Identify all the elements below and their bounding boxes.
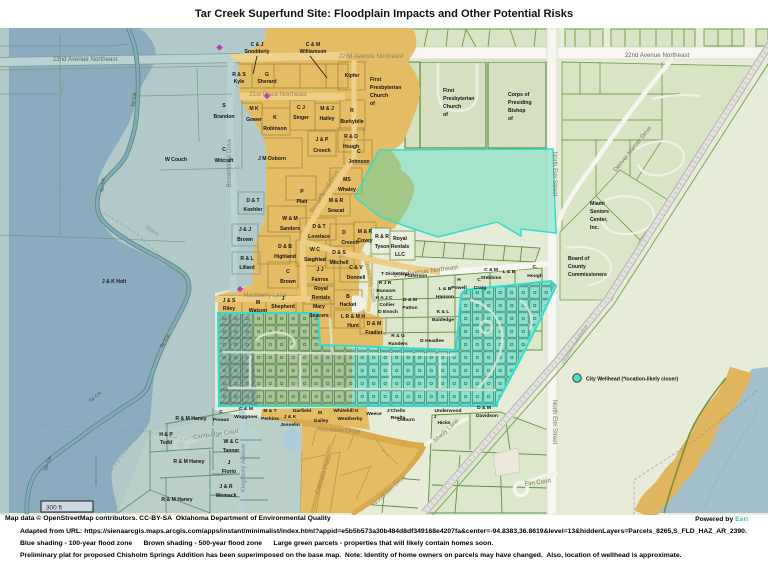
svg-text:Highland: Highland [274, 254, 296, 260]
svg-text:Burkybile: Burkybile [340, 119, 363, 125]
svg-text:Brandon: Brandon [214, 114, 235, 120]
svg-text:Bishop: Bishop [508, 108, 526, 114]
svg-text:J & R: J & R [219, 484, 232, 490]
svg-text:R J R: R J R [379, 280, 392, 286]
svg-text:Gailey: Gailey [314, 418, 329, 424]
svg-text:Kipfer: Kipfer [345, 73, 360, 79]
svg-text:R & R: R & R [375, 234, 389, 240]
svg-text:L & B: L & B [503, 269, 516, 275]
svg-text:C: C [219, 409, 223, 415]
svg-text:Presbyterian: Presbyterian [443, 96, 474, 102]
svg-text:C & V: C & V [349, 265, 363, 271]
svg-text:C & M: C & M [239, 406, 253, 412]
svg-text:Board of: Board of [568, 256, 590, 262]
svg-text:Robinson: Robinson [263, 126, 286, 132]
svg-text:of: of [443, 112, 448, 118]
svg-text:H: H [457, 277, 461, 283]
svg-text:Sanders: Sanders [280, 226, 300, 232]
svg-text:21st Place Northeast: 21st Place Northeast [249, 91, 307, 98]
svg-text:Ransom: Ransom [376, 288, 396, 294]
svg-text:300 ft: 300 ft [46, 505, 62, 512]
svg-text:Williamson: Williamson [300, 49, 327, 55]
svg-text:Brown: Brown [237, 237, 253, 243]
svg-text:H & P: H & P [159, 432, 173, 438]
svg-text:R & G: R & G [391, 333, 405, 339]
svg-text:LLC: LLC [395, 252, 405, 258]
svg-text:D: D [342, 230, 346, 236]
svg-text:D & M: D & M [477, 405, 491, 411]
svg-text:R & L: R & L [240, 256, 253, 262]
svg-text:Royal: Royal [393, 236, 407, 242]
svg-text:J & K: J & K [284, 414, 297, 420]
svg-text:J & J: J & J [239, 227, 251, 233]
svg-text:Davidson: Davidson [476, 413, 498, 419]
svg-text:Covey: Covey [357, 238, 372, 244]
svg-text:R & D: R & D [344, 134, 358, 140]
svg-text:of: of [508, 116, 513, 122]
svg-text:Waggoner: Waggoner [234, 414, 258, 420]
svg-text:D & M: D & M [367, 321, 381, 327]
svg-text:D & T: D & T [312, 224, 326, 230]
svg-text:Hough: Hough [527, 273, 542, 279]
svg-text:J J: J J [316, 267, 323, 273]
svg-text:Randers: Randers [388, 341, 408, 347]
svg-text:D & T: D & T [246, 198, 260, 204]
svg-text:C & M: C & M [306, 42, 320, 48]
svg-text:Presiding: Presiding [508, 100, 532, 106]
svg-text:Rentals: Rentals [391, 244, 410, 250]
svg-text:Inc.: Inc. [590, 225, 599, 231]
svg-text:C J: C J [297, 105, 305, 111]
svg-text:D & B: D & B [278, 244, 292, 250]
svg-text:Baldedge: Baldedge [432, 317, 454, 323]
svg-text:Brown: Brown [280, 279, 296, 285]
svg-text:Royal: Royal [314, 286, 328, 292]
svg-text:Lovelace: Lovelace [308, 234, 330, 240]
svg-text:Tanner: Tanner [223, 448, 240, 454]
svg-text:R: R [350, 108, 354, 114]
svg-text:Lillard: Lillard [239, 265, 254, 271]
svg-text:W & M: W & M [282, 216, 298, 222]
svg-text:Watson: Watson [249, 308, 267, 314]
svg-text:C: C [286, 269, 290, 275]
svg-text:Donnell: Donnell [347, 275, 366, 281]
svg-text:M: M [256, 300, 260, 306]
svg-text:M K: M K [249, 106, 259, 112]
svg-text:D & S: D & S [332, 250, 346, 256]
svg-text:Kyle: Kyle [234, 79, 245, 85]
svg-text:Hacket: Hacket [340, 302, 357, 308]
svg-text:Weece: Weece [366, 411, 382, 417]
svg-text:Collier: Collier [379, 302, 394, 308]
svg-text:R & S: R & S [232, 72, 246, 78]
svg-text:Creech: Creech [341, 240, 358, 246]
svg-text:W & C: W & C [224, 439, 239, 445]
svg-text:22nd Avenue Northeast: 22nd Avenue Northeast [53, 56, 118, 63]
svg-text:Seacat: Seacat [328, 208, 345, 214]
svg-text:Weatherby: Weatherby [338, 416, 363, 422]
svg-text:Snodderly: Snodderly [245, 49, 270, 55]
svg-text:Miami: Miami [590, 201, 605, 207]
svg-text:R & M Haney: R & M Haney [175, 416, 206, 422]
svg-text:Seacers: Seacers [309, 313, 329, 319]
svg-text:Tyson: Tyson [375, 244, 390, 250]
svg-text:J: J [228, 460, 231, 466]
svg-text:R & M Haney: R & M Haney [161, 497, 192, 503]
svg-text:Kingsbury Avenue: Kingsbury Avenue [241, 443, 247, 492]
svg-text:B: B [346, 294, 350, 300]
svg-text:22nd Avenue Northeast: 22nd Avenue Northeast [625, 52, 690, 59]
svg-text:J: J [434, 414, 437, 420]
svg-text:Gower: Gower [246, 117, 262, 123]
svg-text:Womack: Womack [216, 493, 237, 499]
svg-text:Osburn: Osburn [397, 417, 414, 423]
svg-text:R & M Haney: R & M Haney [173, 459, 204, 465]
svg-text:H A J C: H A J C [375, 295, 392, 301]
svg-text:Preaus: Preaus [213, 417, 230, 423]
svg-text:J M Osborn: J M Osborn [258, 156, 286, 162]
svg-text:Florio: Florio [222, 469, 236, 475]
svg-text:Mary: Mary [313, 304, 325, 310]
svg-text:D & M: D & M [403, 297, 417, 303]
svg-text:Hailey: Hailey [319, 116, 334, 122]
svg-text:C: C [222, 147, 226, 153]
svg-text:Patterson: Patterson [405, 273, 428, 279]
svg-text:First: First [370, 77, 382, 83]
svg-text:Creech: Creech [313, 148, 330, 154]
svg-text:J'Chells: J'Chells [387, 408, 406, 414]
svg-text:Whaley: Whaley [338, 187, 356, 193]
svg-text:W Couch: W Couch [165, 157, 187, 163]
svg-text:Presbyterian: Presbyterian [370, 85, 401, 91]
svg-text:M & J: M & J [320, 106, 334, 112]
svg-text:C & J: C & J [250, 42, 263, 48]
svg-text:Garfield: Garfield [293, 408, 311, 414]
svg-text:Church: Church [443, 104, 461, 110]
svg-text:Stebbins: Stebbins [481, 275, 502, 281]
svg-text:K: K [273, 115, 277, 121]
svg-text:C: C [357, 149, 361, 155]
svg-text:Hunt: Hunt [347, 323, 359, 329]
svg-text:Perkins: Perkins [261, 416, 279, 422]
svg-text:Fradier: Fradier [365, 330, 382, 336]
svg-text:J & K Holt: J & K Holt [102, 279, 127, 285]
svg-text:Josselin: Josselin [280, 422, 300, 428]
svg-text:Hanson: Hanson [436, 294, 454, 300]
svg-text:M & R: M & R [358, 229, 373, 235]
svg-text:Corps of: Corps of [508, 92, 530, 98]
svg-text:Singer: Singer [293, 115, 309, 121]
svg-text:Koehler: Koehler [244, 207, 263, 213]
svg-text:Craig: Craig [474, 285, 487, 291]
svg-text:MS: MS [343, 177, 351, 183]
svg-text:M & T: M & T [263, 408, 276, 414]
svg-text:Seniors: Seniors [590, 209, 609, 215]
svg-text:C.: C. [533, 264, 539, 270]
svg-text:Miami: Miami [58, 81, 64, 96]
svg-text:M: M [318, 410, 322, 416]
svg-text:M & R: M & R [329, 198, 344, 204]
svg-text:Platt: Platt [296, 199, 307, 205]
svg-text:Patton: Patton [402, 305, 417, 311]
svg-text:S: S [222, 103, 226, 109]
svg-text:W C: W C [310, 247, 320, 253]
svg-text:Center,: Center, [590, 217, 608, 223]
svg-text:Shepherd: Shepherd [271, 304, 295, 310]
svg-text:City Wellhead (*location-likel: City Wellhead (*location-likely closer) [586, 377, 678, 383]
svg-text:Whitehill K: Whitehill K [333, 408, 359, 414]
svg-text:P: P [300, 189, 304, 195]
svg-text:Underwood: Underwood [435, 408, 462, 414]
svg-text:C & M: C & M [484, 267, 498, 273]
svg-text:Church: Church [370, 93, 388, 99]
svg-text:L & B: L & B [439, 286, 452, 292]
svg-text:of: of [370, 101, 375, 107]
svg-text:Commissioners: Commissioners [568, 272, 607, 278]
svg-text:Hicks: Hicks [437, 420, 450, 426]
svg-text:Siegfried: Siegfried [304, 257, 326, 263]
svg-text:Johnson: Johnson [348, 159, 369, 165]
svg-text:22nd Avenue Northeast: 22nd Avenue Northeast [339, 53, 404, 60]
svg-text:Sherard: Sherard [257, 79, 276, 85]
svg-text:Powell: Powell [451, 285, 467, 291]
svg-text:J & S: J & S [223, 298, 236, 304]
svg-text:Fairres: Fairres [312, 277, 329, 283]
svg-text:J & P: J & P [316, 137, 329, 143]
svg-text:North Elm Street: North Elm Street [551, 400, 557, 445]
svg-text:Rentals: Rentals [312, 295, 331, 301]
svg-text:G: G [265, 72, 269, 78]
svg-text:K & L: K & L [437, 309, 450, 315]
svg-text:County: County [568, 264, 586, 270]
svg-text:North Elm Street: North Elm Street [551, 152, 557, 197]
svg-text:L R & M H: L R & M H [341, 314, 365, 320]
svg-text:C: C [477, 277, 481, 283]
svg-text:D Headlee: D Headlee [420, 338, 444, 344]
svg-text:Riley: Riley [223, 306, 235, 312]
svg-text:First: First [443, 88, 455, 94]
svg-text:Mitchell: Mitchell [330, 260, 350, 266]
svg-text:D Enoch: D Enoch [378, 309, 398, 315]
svg-text:Todd: Todd [160, 440, 172, 446]
svg-text:J: J [282, 296, 285, 302]
svg-text:Witcraft: Witcraft [215, 158, 234, 164]
svg-text:Hackberry Lane: Hackberry Lane [244, 293, 287, 299]
